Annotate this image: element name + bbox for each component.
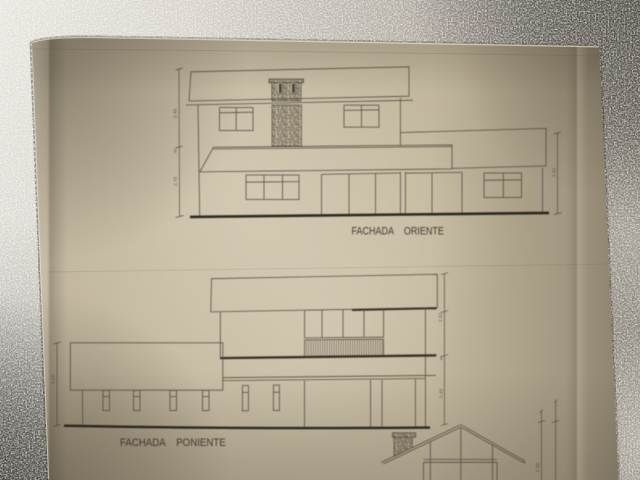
svg-text:2.40: 2.40 bbox=[552, 167, 557, 177]
svg-text:2.40: 2.40 bbox=[439, 388, 444, 398]
svg-text:4.00: 4.00 bbox=[51, 374, 56, 384]
svg-text:2.70: 2.70 bbox=[173, 176, 178, 186]
svg-text:2.40: 2.40 bbox=[173, 108, 178, 118]
svg-text:60: 60 bbox=[439, 356, 443, 360]
svg-text:FACHADA PONIENTE: FACHADA PONIENTE bbox=[120, 437, 226, 449]
svg-text:2.52: 2.52 bbox=[438, 312, 443, 322]
svg-text:FACHADA ORIENTE: FACHADA ORIENTE bbox=[352, 226, 445, 238]
svg-text:2.46: 2.46 bbox=[535, 462, 540, 472]
svg-text:60: 60 bbox=[174, 149, 178, 153]
